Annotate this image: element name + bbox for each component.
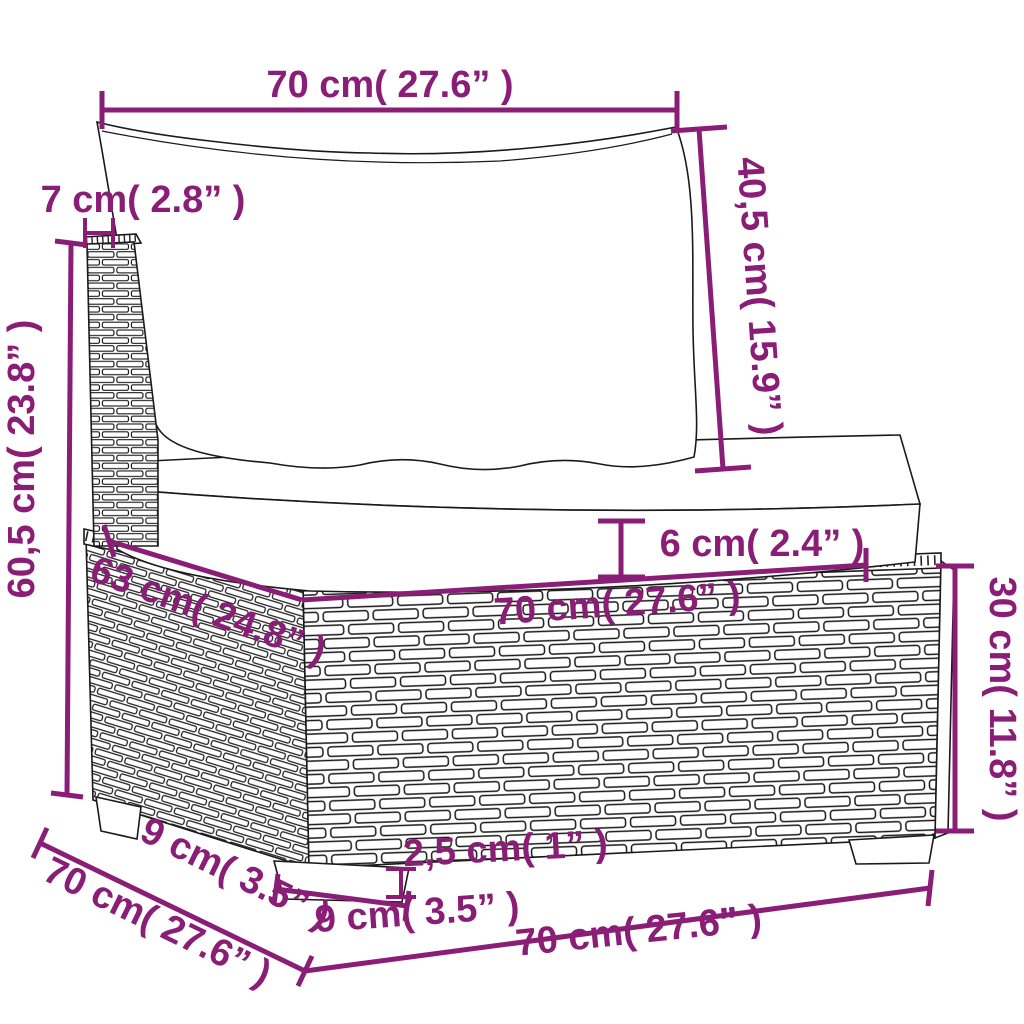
back-cushion-height-label: 40,5 cm( 15.9” ) xyxy=(728,156,789,437)
base-height-label: 30 cm( 11.8” ) xyxy=(981,576,1023,821)
backrest-thickness-label: 7 cm( 2.8” ) xyxy=(41,179,246,221)
dimension-diagram: 70 cm( 27.6” ) 40,5 cm( 15.9” ) 7 cm( 2.… xyxy=(0,0,1024,1024)
sofa-line-drawing: 70 cm( 27.6” ) 40,5 cm( 15.9” ) 7 cm( 2.… xyxy=(0,0,1024,1024)
foot-front-right xyxy=(849,835,934,864)
pillow-width-label: 70 cm( 27.6” ) xyxy=(266,64,513,106)
seat-cushion-thickness-label: 6 cm( 2.4” ) xyxy=(660,523,865,565)
sofa-sketch xyxy=(84,122,954,902)
base-width-label: 70 cm( 27.6” ) xyxy=(514,897,764,965)
total-height-label: 60,5 cm( 23.8” ) xyxy=(1,320,43,599)
back-cushion xyxy=(97,122,697,470)
dim-total-height xyxy=(51,241,87,797)
